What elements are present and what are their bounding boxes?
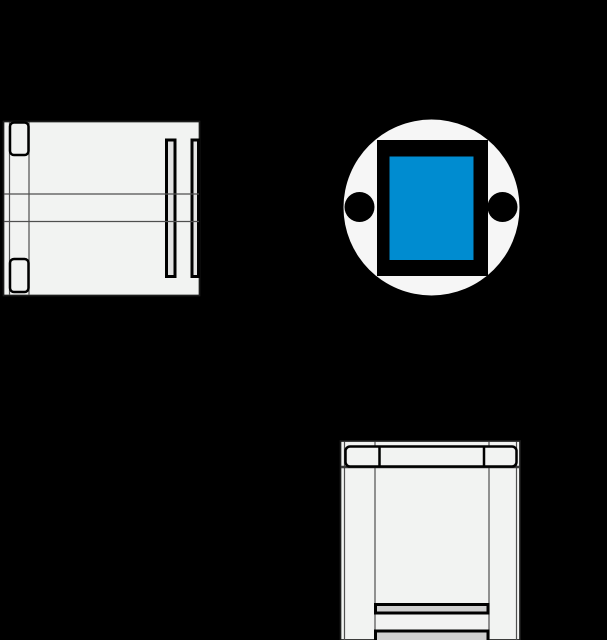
- bottom-view-jaw-band: [346, 447, 517, 467]
- side-view-jaw-bottom-segment: [10, 259, 29, 292]
- front-view: [344, 120, 520, 296]
- drawing-canvas: [0, 0, 607, 640]
- front-view-right-pin: [488, 192, 518, 222]
- side-view: [4, 122, 200, 296]
- bottom-view-slot-bar: [376, 605, 489, 614]
- side-view-slot: [192, 140, 199, 277]
- front-view-blue-window: [390, 157, 474, 261]
- side-view-slot: [167, 140, 176, 277]
- front-view-left-pin: [345, 192, 375, 222]
- technical-drawing: [0, 0, 607, 640]
- side-view-jaw-top-segment: [10, 123, 29, 156]
- bottom-view: [341, 441, 521, 640]
- bottom-view-slot-bar: [376, 631, 489, 640]
